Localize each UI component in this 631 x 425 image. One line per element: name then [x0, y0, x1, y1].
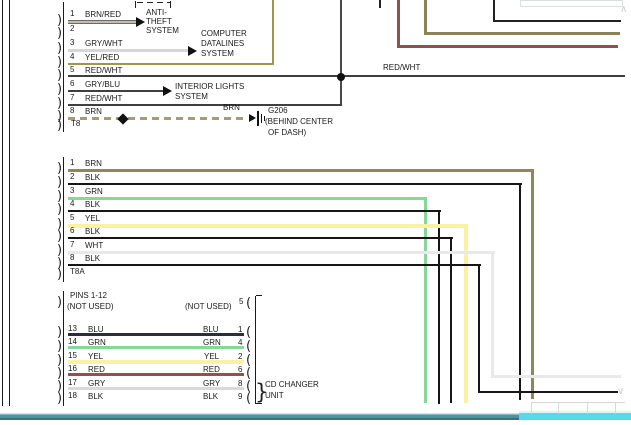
cd-pin16-wirecolor: RED — [88, 365, 105, 374]
t8a-pin4-number: 4 — [70, 199, 74, 208]
ground-tick1 — [261, 114, 262, 123]
wire-top-blk-h — [493, 20, 621, 22]
wire-top-olive-v — [424, 0, 427, 35]
wire-t8a-7-wht-v — [491, 251, 494, 378]
cd-pin14-wirecolor: GRN — [88, 338, 106, 347]
t8-pin1-wirecolor: BRN/RED — [85, 10, 121, 19]
t8-pin3-wirecolor: GRY/WHT — [85, 39, 123, 48]
brn-wire-label: BRN — [223, 103, 240, 112]
wire-t8-4-yelred-v — [272, 0, 274, 64]
cd-pin16-number: 16 — [68, 364, 77, 373]
anti-theft-line1: ANTI- — [146, 8, 167, 17]
scroll-cells-tick4 — [615, 402, 616, 414]
cd-pin16-right-wirecolor: RED — [203, 365, 220, 374]
scrollbar-top-track — [520, 0, 623, 7]
t8a-pin6-wirecolor: BLK — [85, 227, 100, 236]
cd-right-pin-arc: ( — [246, 340, 251, 353]
wire-top-short-blk — [379, 0, 381, 8]
cd-pin18-right-number: 9 — [238, 392, 242, 401]
cd-pin15-right-number: 2 — [238, 352, 242, 361]
cd-changer-unit-line1: CD CHANGER — [265, 380, 319, 389]
t8a-pin3-number: 3 — [70, 186, 74, 195]
scroll-up-chevron: ∧ — [620, 5, 627, 15]
cd-pin18-right-wirecolor: BLK — [203, 392, 218, 401]
t8a-pin8-wirecolor: BLK — [85, 254, 100, 263]
t8-pin1-number: 1 — [70, 9, 74, 18]
t8a-pin1-wirecolor: BRN — [85, 159, 102, 168]
t8-pin8-number: 8 — [70, 106, 74, 115]
wire-t8a-2-blk-v — [519, 183, 521, 400]
dashedbox-tick-right — [170, 1, 171, 8]
computer-datalines-line2: DATALINES — [201, 39, 244, 48]
wire-t8a-7-wht-h — [68, 251, 495, 254]
wire-t8a-4-blk-h — [68, 210, 441, 212]
t8-pin3-number: 3 — [70, 38, 74, 47]
wire-t8-1-brnred — [68, 20, 137, 24]
t8-pin6-wirecolor: GRY/BLU — [85, 80, 120, 89]
cd-pin18-number: 18 — [68, 391, 77, 400]
cd-pin13-right-number: 1 — [238, 325, 242, 334]
frame-line-outer — [2, 0, 3, 406]
t8a-pin-arc: ) — [57, 176, 62, 189]
t8a-pin7-number: 7 — [70, 240, 74, 249]
redwht-wire-label: RED/WHT — [383, 63, 420, 72]
t8-pin4-wirecolor: YEL/RED — [85, 53, 119, 62]
cd-right-pin-arc: ( — [246, 326, 251, 339]
statusbar-left — [0, 413, 519, 420]
t8a-pin-arc: ) — [57, 268, 62, 281]
anti-theft-line3: SYSTEM — [146, 26, 179, 35]
t8-connector-id: T8 — [71, 119, 80, 128]
anti-theft-arrow — [136, 17, 145, 27]
wire-t8a-6-blk-h — [68, 237, 453, 239]
cd-pin17-number: 17 — [68, 378, 77, 387]
ground-location-line1: (BEHIND CENTER — [265, 117, 333, 126]
wire-t8a-6-blk-v — [450, 237, 452, 403]
cd-pin13-number: 13 — [68, 324, 77, 333]
t8-pin4-number: 4 — [70, 52, 74, 61]
t8a-pin5-number: 5 — [70, 213, 74, 222]
wire-t8-4-yelred-h — [68, 63, 274, 65]
scroll-cells-tick3 — [587, 402, 588, 414]
cd-pin17-right-wirecolor: GRY — [203, 379, 220, 388]
scroll-cells-tick1 — [531, 402, 532, 414]
t8a-pin4-wirecolor: BLK — [85, 200, 100, 209]
t8a-pin6-number: 6 — [70, 226, 74, 235]
interior-lights-line1: INTERIOR LIGHTS — [175, 82, 244, 91]
wire-top-blk-v — [493, 0, 495, 22]
t8a-pin3-wirecolor: GRN — [85, 187, 103, 196]
wire-t8a-4-blk-v — [438, 210, 440, 404]
computer-datalines-line1: COMPUTER — [201, 29, 247, 38]
wire-t8a-2-blk-h — [68, 183, 522, 185]
t8-pin5-wirecolor: RED/WHT — [85, 66, 122, 75]
t8-pin8-wirecolor: BRN — [85, 107, 102, 116]
ground-arrow — [249, 114, 256, 122]
t8a-pin-arc: ) — [57, 162, 62, 175]
cd-left-pin-arc: ) — [57, 340, 62, 353]
wire-top-olive-h — [424, 32, 620, 35]
brn-splice-diamond — [117, 113, 128, 124]
t8a-pin1-number: 1 — [70, 158, 74, 167]
wire-t8a-1-brn-v — [531, 169, 534, 399]
wire-t8a-3-grn-h — [68, 197, 427, 200]
frame-line-inner — [9, 0, 10, 406]
t8-pin7-wirecolor: RED/WHT — [85, 94, 122, 103]
cd-connector-line-left — [63, 291, 64, 406]
ground-location-line2: OF DASH) — [268, 128, 306, 137]
interior-lights-arrow — [163, 86, 172, 96]
wire-t8-7-redwht — [68, 104, 342, 106]
t8a-connector-line — [63, 157, 64, 282]
cd-pins-note: PINS 1-12 — [70, 291, 107, 300]
t8-pin-arc: ) — [57, 42, 62, 55]
cd-left-pin-arc: ) — [57, 296, 62, 309]
cd-pin14-number: 14 — [68, 337, 77, 346]
t8a-pin8-number: 8 — [70, 253, 74, 262]
wire-t8a-8-blk-v — [478, 264, 480, 393]
t8-pin6-number: 6 — [70, 79, 74, 88]
cd-pin16-right-number: 6 — [238, 365, 242, 374]
t8-pin5-number: 5 — [70, 65, 74, 74]
dashedbox-tick-left — [135, 1, 136, 8]
cd-pin17-right-number: 8 — [238, 379, 242, 388]
ground-id: G206 — [268, 106, 288, 115]
wire-t8-5-redwht-branch-v — [340, 0, 342, 106]
wire-top-maroon-h — [397, 45, 618, 48]
wire-t8-3-grywht — [68, 49, 188, 52]
ground-bar — [257, 111, 259, 126]
cd-left-pin-arc: ) — [57, 326, 62, 339]
cd-pin14-right-number: 4 — [238, 338, 242, 347]
t8a-pin5-wirecolor: YEL — [85, 214, 100, 223]
cd-notused-left: (NOT USED) — [67, 302, 114, 311]
t8a-pin-arc: ) — [57, 203, 62, 216]
cd-right-pin-arc: ( — [246, 297, 251, 310]
dashedbox-edge — [137, 2, 170, 3]
t8a-connector-id: T8A — [70, 267, 85, 276]
cd-pin17-wirecolor: GRY — [88, 379, 105, 388]
cd-pin14-right-wirecolor: GRN — [203, 338, 221, 347]
cd-notused-right: (NOT USED) — [185, 302, 232, 311]
wiring-diagram-page: )))))))))))))))))))))))))(((((((}∧∨1BRN/… — [0, 0, 631, 425]
wire-t8-6-gryblu — [68, 90, 163, 92]
cd-pin5-right-number: 5 — [239, 297, 243, 306]
scroll-cells-tick2 — [558, 402, 559, 414]
wire-t8a-8-blk-h2 — [478, 391, 618, 393]
t8-pin-arc: ) — [57, 83, 62, 96]
t8-pin-arc: ) — [57, 27, 62, 40]
t8-connector-line — [63, 2, 64, 132]
cd-pin13-wirecolor: BLU — [88, 325, 104, 334]
redwht-junction-dot — [337, 73, 345, 81]
wire-t8-5-redwht — [68, 75, 625, 77]
wire-t8-8-brn-dashed — [68, 117, 248, 120]
t8-pin-arc: ) — [57, 119, 62, 132]
wire-t8a-8-blk-h — [68, 264, 481, 266]
scroll-cells-hline — [531, 402, 625, 403]
cd-pin13-right-wirecolor: BLU — [203, 325, 219, 334]
wire-top-maroon-v — [397, 0, 400, 48]
t8-pin7-number: 7 — [70, 93, 74, 102]
computer-datalines-line3: SYSTEM — [201, 49, 234, 58]
cd-pin18-wirecolor: BLK — [88, 392, 103, 401]
stereo-wiring-diagram: )))))))))))))))))))))))))(((((((}∧∨1BRN/… — [0, 0, 631, 425]
t8-pin2-number: 2 — [70, 24, 74, 33]
cd-pin15-number: 15 — [68, 351, 77, 360]
t8a-pin2-wirecolor: BLK — [85, 173, 100, 182]
t8a-pin7-wirecolor: WHT — [85, 241, 103, 250]
cd-pin15-wirecolor: YEL — [88, 352, 103, 361]
cd-left-pin-arc: ) — [57, 392, 62, 405]
cd-connector-hook-top — [256, 295, 262, 296]
computer-datalines-arrow — [188, 46, 197, 56]
wire-t8a-5-yel-h — [68, 224, 468, 228]
anti-theft-line2: THEFT — [146, 17, 172, 26]
t8a-pin2-number: 2 — [70, 172, 74, 181]
wire-t8a-1-brn-h — [68, 169, 534, 172]
cd-pin15-right-wirecolor: YEL — [204, 352, 219, 361]
cd-changer-unit-line2: UNIT — [265, 391, 284, 400]
t8a-pin-arc: ) — [57, 230, 62, 243]
cd-right-pin-arc: ( — [246, 392, 251, 405]
interior-lights-line2: SYSTEM — [175, 92, 208, 101]
wire-t8a-7-wht-h2 — [491, 375, 621, 378]
t8-pin-arc: ) — [57, 69, 62, 82]
scroll-down-chevron: ∨ — [617, 387, 624, 397]
